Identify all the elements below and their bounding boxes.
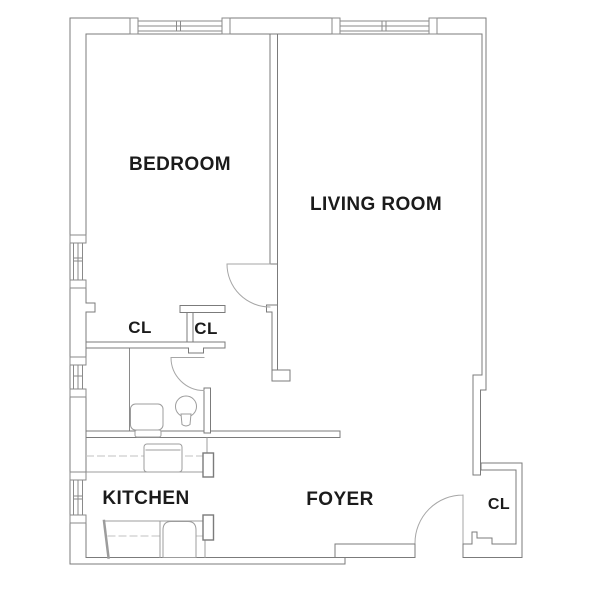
stove xyxy=(144,444,182,472)
room-label-bedroom: BEDROOM xyxy=(100,155,260,174)
bathroom-sink xyxy=(131,404,164,430)
kitchen-sink xyxy=(163,522,196,558)
room-label-living-room: LIVING ROOM xyxy=(296,195,456,214)
left-window-2 xyxy=(70,357,86,397)
room-label-foyer: FOYER xyxy=(260,490,420,509)
bedroom-window xyxy=(130,18,230,34)
room-label-closet-hall: CL xyxy=(186,320,226,337)
room-label-kitchen: KITCHEN xyxy=(66,489,226,508)
bedroom-door xyxy=(227,264,270,307)
left-window-1 xyxy=(70,235,86,288)
kitchen-entry-pier-top xyxy=(203,453,214,477)
floor-plan: BEDROOM LIVING ROOM CL CL KITCHEN FOYER … xyxy=(0,0,600,591)
room-label-closet-entry: CL xyxy=(479,497,519,513)
interior-walls xyxy=(86,34,522,558)
room-label-closet-bedroom: CL xyxy=(120,319,160,336)
windows xyxy=(70,18,437,523)
bathroom-door xyxy=(171,358,204,391)
living-room-window xyxy=(332,18,437,34)
entry-door xyxy=(415,495,463,543)
kitchen-entry-pier-bottom xyxy=(203,515,214,540)
